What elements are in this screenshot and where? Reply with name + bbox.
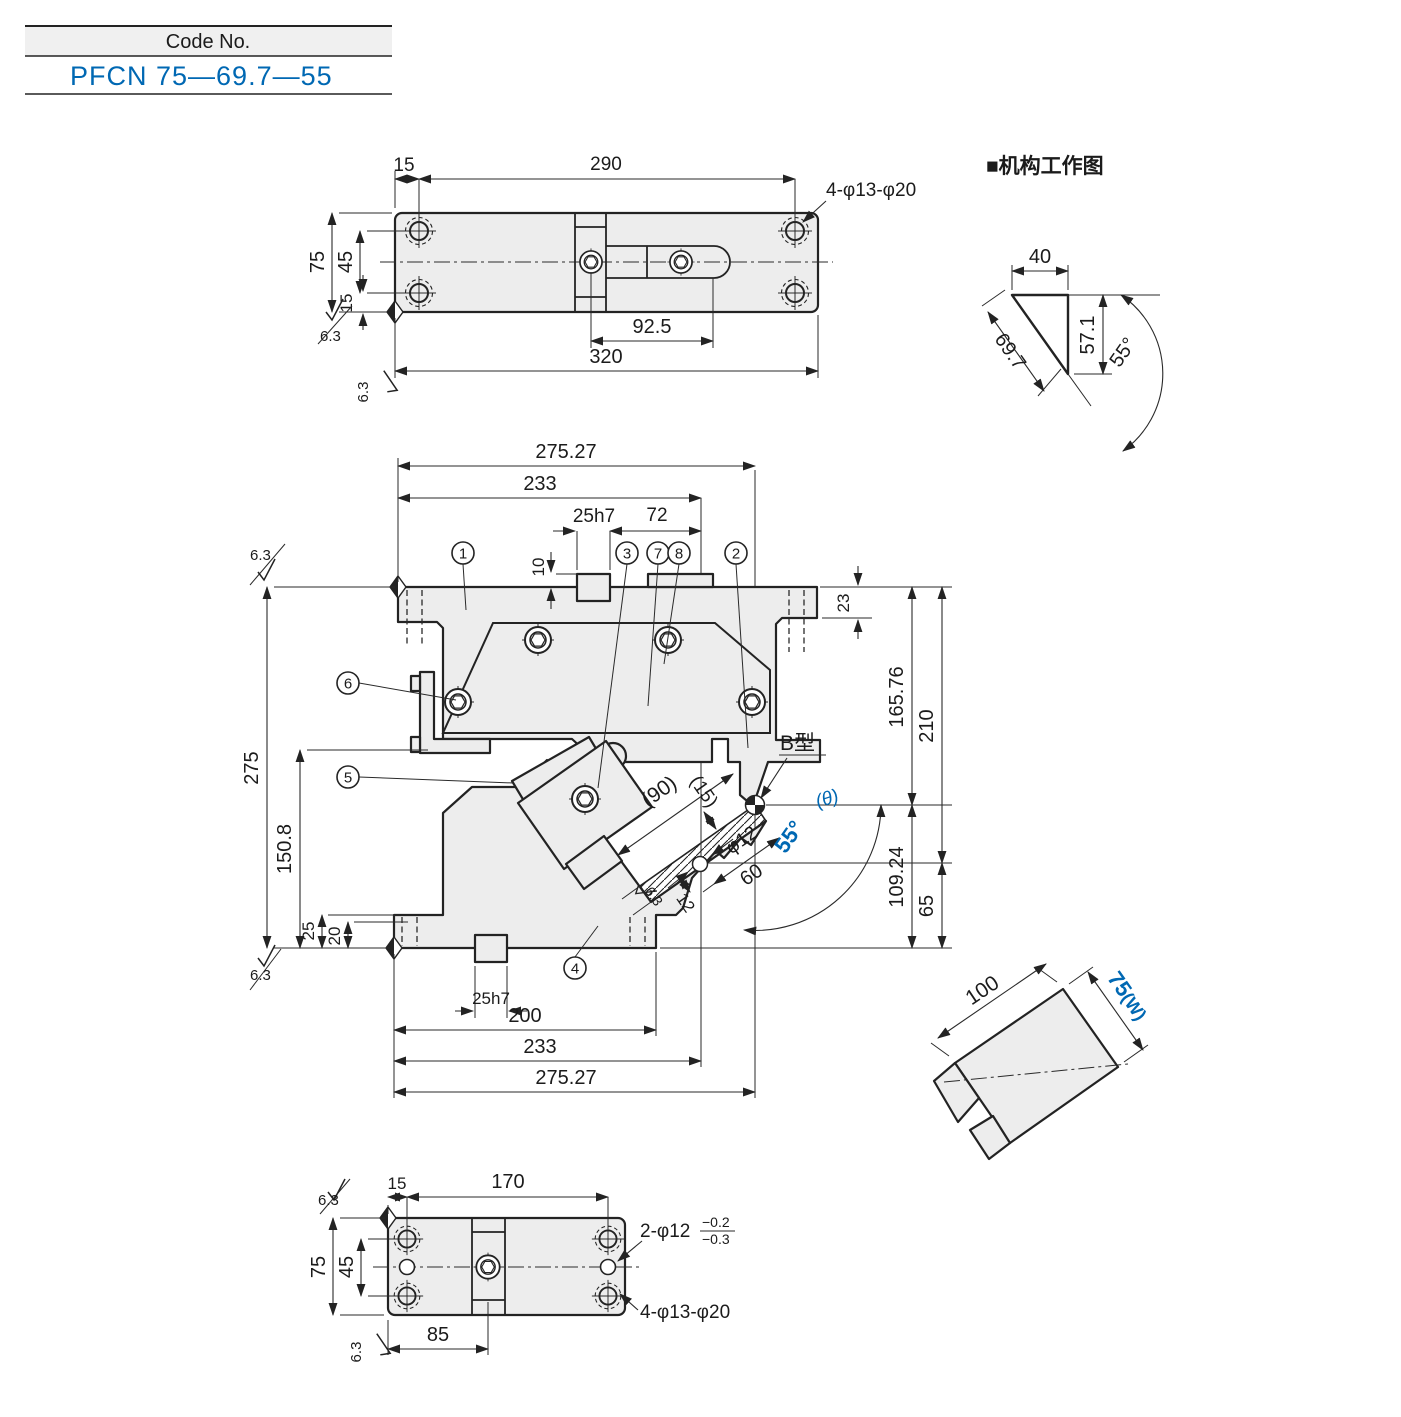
stop-boss	[648, 574, 713, 587]
balloon-5: 5	[337, 766, 513, 788]
dim-320: 320	[589, 346, 622, 368]
balloon-label: 1	[459, 546, 467, 563]
datum-target-b	[746, 796, 765, 815]
main-view: B型 275.27 233 25h7 72 10 1 3	[241, 441, 952, 1098]
tol-upper: −0.2	[702, 1214, 730, 1230]
key-block-top	[577, 574, 610, 601]
dim-275: 275	[241, 751, 263, 784]
dim-15-top: 15	[393, 155, 414, 176]
top-view: 15 290 4-φ13-φ20 75 45 15 6.3 92.5 320 6…	[307, 154, 916, 402]
finish-6-3: 6.3	[318, 1192, 339, 1209]
dim-165-76: 165.76	[886, 666, 908, 727]
surface-finish-icon	[376, 371, 403, 396]
angle-55-main: 55°	[769, 816, 809, 858]
dim-60: 60	[736, 860, 767, 891]
dim-75w: 75(W)	[1103, 967, 1154, 1025]
cad-drawing: Code No. PFCN 75—69.7—55 15 290 4-φ13-φ2…	[0, 0, 1401, 1417]
dim-25h7-top: 25h7	[573, 506, 615, 527]
bottom-view: 15 170 6.3 75 45 85 6.3 2-φ12 −0.2 −0.3 …	[308, 1171, 735, 1362]
dim-65: 65	[916, 895, 938, 917]
balloon-label: 2	[732, 546, 740, 563]
mechanism-diagram: ■机构工作图 40 57.1 69.7 55°	[982, 154, 1163, 451]
label-4-holes-bottom: 4-φ13-φ20	[640, 1302, 730, 1323]
dim-45-top-view: 45	[335, 251, 357, 273]
code-header-label: Code No.	[166, 31, 251, 53]
phi12-hole	[400, 1260, 415, 1275]
balloon-label: 3	[623, 546, 631, 563]
dim-45-bottom-view: 45	[336, 1256, 358, 1278]
dim-15-side-top-view: 15	[337, 294, 356, 313]
dim-23: 23	[834, 594, 853, 613]
dim-85: 85	[427, 1324, 449, 1346]
dim-25h7-bottom: 25h7	[472, 989, 510, 1008]
drawing-page: { "code_block": { "header_label": "Code …	[0, 0, 1401, 1417]
jaw-panel	[443, 623, 770, 733]
surface-finish-icon	[369, 1334, 396, 1359]
phi12-hole	[601, 1260, 616, 1275]
dim-233-bottom: 233	[523, 1036, 556, 1058]
key-block-bottom	[475, 935, 507, 962]
dim-20: 20	[325, 927, 344, 946]
code-block: Code No. PFCN 75—69.7—55	[25, 26, 392, 94]
balloon-label: 8	[675, 546, 683, 563]
balloon-label: 7	[654, 546, 662, 563]
dim-150-8: 150.8	[274, 824, 296, 874]
dim-109-24: 109.24	[886, 846, 908, 907]
dim-275-27-top: 275.27	[535, 441, 596, 463]
dim-25: 25	[299, 922, 318, 941]
mechanism-title: ■机构工作图	[986, 154, 1104, 178]
dim-57-1: 57.1	[1077, 316, 1099, 355]
finish-6-3: 6.3	[250, 967, 271, 984]
theta-label: (θ)	[813, 786, 841, 813]
dim-15-bottom-view: 15	[388, 1174, 407, 1193]
phi12-hole	[693, 857, 708, 872]
dim-75-bottom-view: 75	[308, 1256, 330, 1278]
dim-233-top: 233	[523, 473, 556, 495]
dim-200: 200	[508, 1005, 541, 1027]
dim-69-7: 69.7	[990, 329, 1030, 374]
dim-170: 170	[491, 1171, 524, 1193]
balloon-label: 6	[344, 676, 352, 693]
dim-100: 100	[961, 971, 1003, 1010]
dim-72: 72	[646, 505, 667, 526]
surface-finish-icon	[258, 945, 275, 966]
balloon-label: 4	[571, 961, 579, 978]
tol-lower: −0.3	[702, 1231, 730, 1247]
balloon-6: 6	[337, 672, 456, 700]
label-b-type: B型	[780, 732, 815, 755]
balloon-label: 5	[344, 770, 352, 787]
dim-275-27-bottom: 275.27	[535, 1067, 596, 1089]
dim-15-workpiece: (15)	[685, 772, 722, 812]
dim-40: 40	[1029, 246, 1051, 268]
label-2-phi12: 2-φ12	[640, 1221, 690, 1242]
finish-6-3: 6.3	[348, 1342, 365, 1363]
dim-10: 10	[529, 558, 548, 577]
finish-6-3: 6.3	[355, 382, 372, 403]
iso-view: 100 75(W)	[931, 964, 1154, 1159]
dim-210: 210	[916, 709, 938, 742]
dim-290: 290	[590, 154, 622, 175]
part-code: PFCN 75—69.7—55	[70, 61, 333, 91]
label-4-holes-top: 4-φ13-φ20	[826, 180, 916, 201]
finish-6-3: 6.3	[250, 547, 271, 564]
dim-75-top-view: 75	[307, 251, 329, 273]
iso-plate-face	[955, 989, 1118, 1143]
dim-55-mech: 55°	[1105, 334, 1140, 371]
dim-92-5: 92.5	[633, 316, 672, 338]
